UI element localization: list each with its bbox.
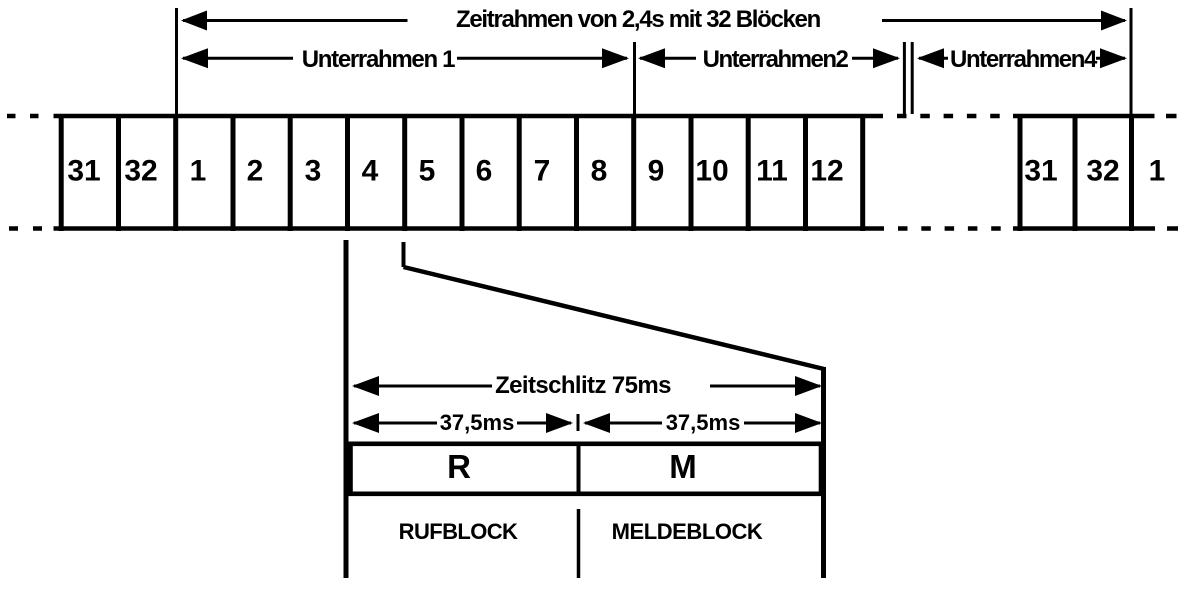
svg-text:MELDEBLOCK: MELDEBLOCK: [612, 519, 763, 544]
svg-text:32: 32: [1086, 155, 1119, 188]
svg-text:1: 1: [1149, 155, 1166, 188]
svg-text:Unterrahmen2: Unterrahmen2: [703, 46, 849, 73]
svg-text:7: 7: [534, 155, 551, 188]
svg-text:R: R: [447, 448, 471, 485]
svg-text:12: 12: [810, 155, 843, 188]
svg-text:1: 1: [190, 155, 207, 188]
svg-text:6: 6: [476, 155, 493, 188]
svg-text:31: 31: [67, 155, 100, 188]
svg-text:M: M: [669, 448, 697, 485]
svg-text:37,5ms: 37,5ms: [666, 410, 741, 435]
svg-text:RUFBLOCK: RUFBLOCK: [399, 519, 518, 544]
svg-text:Unterrahmen4: Unterrahmen4: [950, 46, 1098, 73]
svg-text:Zeitrahmen von 2,4s mit 32 Blö: Zeitrahmen von 2,4s mit 32 Blöcken: [456, 6, 821, 33]
svg-text:5: 5: [419, 155, 436, 188]
svg-text:8: 8: [591, 155, 608, 188]
svg-text:Unterrahmen 1: Unterrahmen 1: [302, 46, 455, 73]
svg-text:31: 31: [1024, 155, 1057, 188]
svg-text:9: 9: [648, 155, 665, 188]
svg-text:4: 4: [362, 155, 379, 188]
svg-text:37,5ms: 37,5ms: [440, 410, 515, 435]
svg-text:Zeitschlitz 75ms: Zeitschlitz 75ms: [495, 372, 671, 399]
svg-text:3: 3: [305, 155, 322, 188]
svg-text:32: 32: [124, 155, 157, 188]
svg-text:10: 10: [695, 155, 728, 188]
svg-text:11: 11: [756, 155, 788, 188]
svg-text:2: 2: [247, 155, 264, 188]
